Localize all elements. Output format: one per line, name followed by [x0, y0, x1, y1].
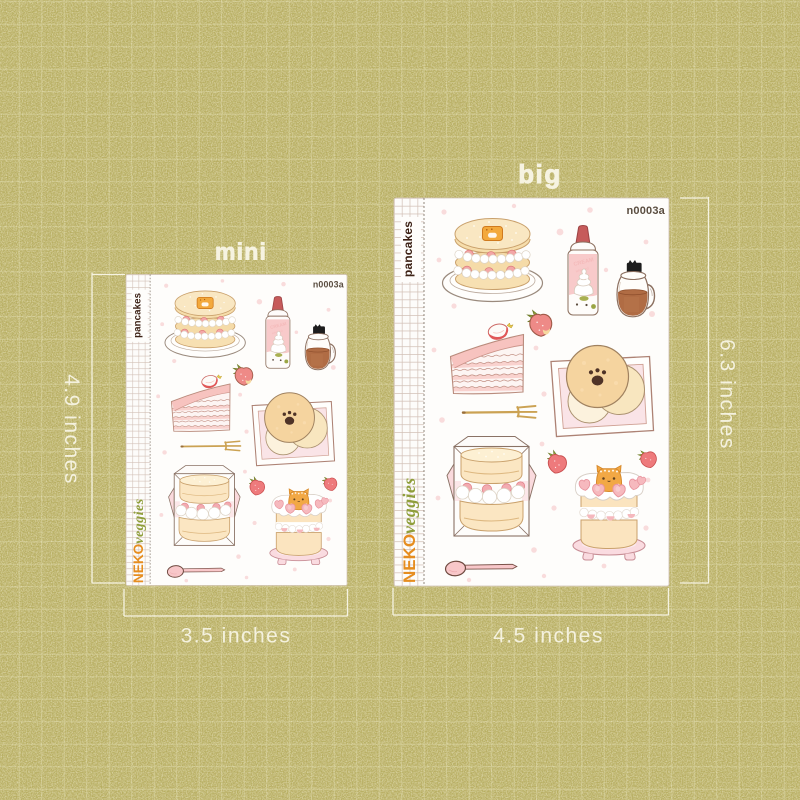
svg-text:6.3 inches: 6.3 inches — [716, 339, 739, 450]
svg-text:4.5 inches: 4.5 inches — [493, 625, 604, 648]
svg-text:mini: mini — [215, 239, 267, 265]
svg-text:big: big — [518, 159, 562, 189]
svg-text:4.9 inches: 4.9 inches — [60, 374, 83, 485]
svg-text:3.5 inches: 3.5 inches — [181, 625, 292, 648]
